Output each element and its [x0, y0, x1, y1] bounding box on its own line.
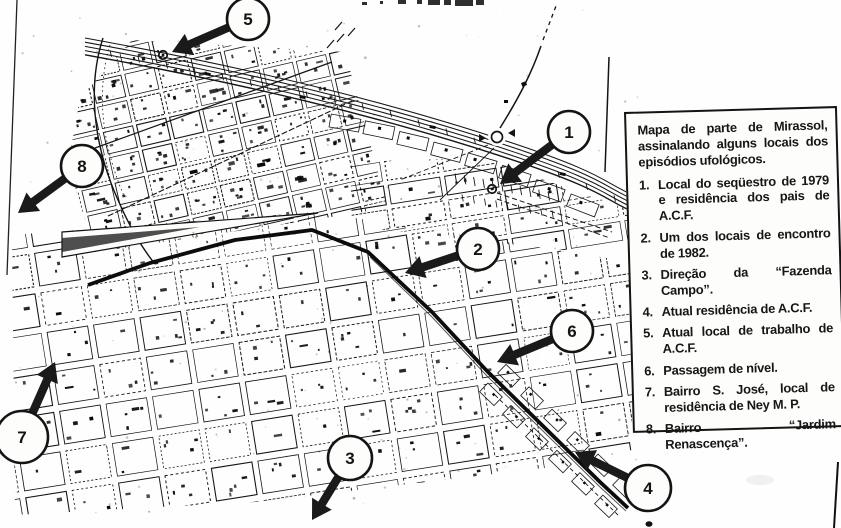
marker-number: 6 — [567, 322, 576, 341]
legend-item-number: 2. — [640, 230, 660, 262]
legend-item-text: Um dos locais de encontro de 1982. — [659, 225, 831, 261]
legend-item: 7.Bairro S. José, local de residência de… — [645, 379, 836, 416]
marker-arrow — [497, 334, 556, 365]
legend-item: 8.Bairro “Jardim Renascença”. — [646, 416, 837, 453]
marker-number: 1 — [564, 123, 573, 142]
cropped-text-artifact — [362, 0, 484, 6]
marker-number: 5 — [243, 10, 252, 29]
marker-arrow — [405, 251, 461, 278]
legend-item-number: 8. — [646, 421, 666, 453]
map-marker-6: 6 — [497, 310, 593, 365]
legend-item-text: Atual local de trabalho de A.C.F. — [662, 321, 834, 357]
marker-number: 8 — [77, 157, 86, 176]
map-dash-marks — [327, 22, 355, 48]
marker-number: 2 — [473, 240, 482, 259]
legend-item-text: Direção da “Fazenda Campo”. — [660, 262, 832, 298]
marker-number: 7 — [17, 428, 26, 447]
legend-item: 3.Direção da “Fazenda Campo”. — [641, 262, 832, 299]
legend-item-number: 6. — [644, 363, 663, 379]
scanned-book-page: 12345678 Mapa de parte de Mirassol, assi… — [0, 0, 841, 528]
marker-arrow — [18, 174, 69, 213]
roundabout-icon — [479, 128, 515, 146]
legend-item-number: 4. — [642, 304, 661, 320]
map-marker-2: 2 — [405, 228, 499, 278]
map-marker-7: 7 — [0, 362, 58, 463]
marker-number: 4 — [643, 479, 653, 498]
legend-item: 6.Passagem de nível. — [644, 358, 834, 379]
legend-item-text: Local do seqüestro de 1979 e residência … — [658, 172, 830, 224]
legend-item-number: 7. — [645, 384, 665, 416]
legend-item: 1.Local do seqüestro de 1979 e residênci… — [639, 172, 830, 225]
legend-item-number: 1. — [639, 177, 659, 225]
legend-item-number: 5. — [643, 325, 663, 357]
legend-item-list: 1.Local do seqüestro de 1979 e residênci… — [639, 172, 837, 454]
legend-item: 5.Atual local de trabalho de A.C.F. — [643, 321, 834, 358]
legend-item-text: Bairro S. José, local de residência de N… — [664, 379, 836, 415]
ink-blob-artifact — [646, 521, 653, 527]
legend-item: 4.Atual residência de A.C.F. — [642, 299, 832, 320]
legend-item-text: Passagem de nível. — [663, 358, 834, 379]
legend-item-text: Atual residência de A.C.F. — [661, 299, 832, 320]
marker-number: 3 — [345, 449, 354, 468]
map-marker-5: 5 — [159, 0, 269, 59]
marker-arrow — [28, 362, 58, 417]
map-marker-8: 8 — [18, 145, 103, 213]
diagonal-avenues — [95, 62, 354, 216]
legend-box: Mapa de parte de Mirassol, assinalando a… — [624, 106, 841, 433]
legend-item-number: 3. — [641, 267, 661, 299]
marker-arrow — [172, 23, 232, 55]
marker-arrow — [312, 473, 343, 520]
legend-item: 2.Um dos locais de encontro de 1982. — [640, 225, 831, 262]
marker-arrow — [500, 140, 556, 184]
legend-item-text: Bairro “Jardim Renascença”. — [665, 416, 837, 452]
legend-title: Mapa de parte de Mirassol, assinalando a… — [637, 117, 828, 170]
